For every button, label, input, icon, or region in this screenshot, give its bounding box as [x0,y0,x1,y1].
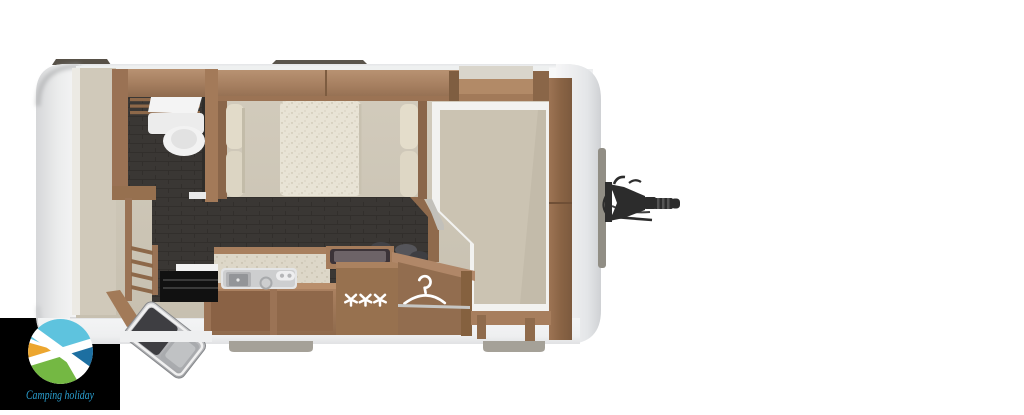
svg-text:Camping holiday: Camping holiday [26,388,94,402]
